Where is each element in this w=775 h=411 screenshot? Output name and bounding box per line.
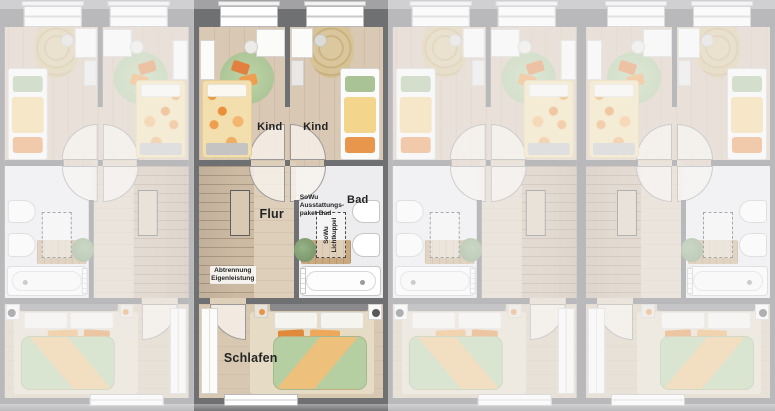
wall-bottom-exterior xyxy=(388,398,582,404)
wall-bottom-exterior xyxy=(581,398,775,404)
shelf-kid-right xyxy=(678,60,691,86)
exterior-ground-top xyxy=(581,0,775,9)
rug-jute xyxy=(695,18,741,78)
nightstand-left xyxy=(641,304,655,318)
wall-bedroom-north-right xyxy=(392,298,529,304)
towel-radiator xyxy=(687,268,693,294)
window-bedroom xyxy=(90,394,164,406)
annotation-abtrennung-line2: Eigenleistung xyxy=(210,275,256,283)
pillow-kid-left xyxy=(528,84,568,97)
blanket-yellow xyxy=(731,97,763,133)
bed-kid-right xyxy=(395,68,435,160)
wardrobe-bedroom xyxy=(170,308,187,394)
rug-green xyxy=(607,52,661,104)
chair-kid-left xyxy=(130,40,144,54)
desk-kid-left xyxy=(490,29,519,57)
rug-green xyxy=(114,52,168,104)
bathtub-faucet xyxy=(747,280,752,285)
floor-plan-canvas: Kind Kind Flur Bad SoWu Ausstattungs- pa… xyxy=(0,0,775,411)
bed-kid-left xyxy=(523,80,573,158)
window-kid-left xyxy=(607,6,665,27)
bed-headboard xyxy=(20,302,118,311)
nightstand-right xyxy=(6,304,20,320)
wall-hall-bath xyxy=(476,200,481,298)
bed-pillow-right xyxy=(411,312,455,329)
wall-left-party xyxy=(189,9,194,404)
bathtub-faucet xyxy=(410,280,415,285)
door-swing-hall xyxy=(490,166,526,202)
bedroom-rug xyxy=(637,312,761,394)
pillow-kid-left xyxy=(594,84,634,97)
wall-right-party xyxy=(388,9,393,404)
decor-orange xyxy=(646,309,652,315)
toilet xyxy=(739,233,767,257)
cushion-orange-2 xyxy=(130,73,149,88)
room-label-flur: Flur xyxy=(242,207,302,221)
wall-top-exterior xyxy=(388,9,582,27)
pillow-green xyxy=(13,76,43,92)
bathtub-basin xyxy=(693,271,763,291)
towel-radiator xyxy=(469,268,475,294)
bed-cushion-orange-2 xyxy=(435,329,465,339)
wall-right-party xyxy=(0,9,5,404)
desk-kid-left xyxy=(103,29,132,57)
annotation-abtrennung-line1: Abtrennung xyxy=(210,267,256,275)
toilet xyxy=(8,233,36,257)
wall-kids-divider xyxy=(98,27,103,107)
bathroom-floor xyxy=(683,166,770,298)
bathtub-basin xyxy=(12,271,82,291)
wardrobe-kid-left xyxy=(560,40,575,80)
bed-pillow-right xyxy=(707,312,751,329)
bathtub-basin xyxy=(399,271,469,291)
exterior-ground-top xyxy=(0,0,194,9)
desk-kid-right xyxy=(462,28,484,58)
door-swing-bedroom xyxy=(597,304,633,340)
chair-kid-left xyxy=(631,40,645,54)
door-swing-kid-right xyxy=(677,124,713,160)
bed-kid-right xyxy=(727,68,767,160)
window-kid-left xyxy=(110,6,168,27)
wall-left-party xyxy=(581,9,586,404)
door-swing-bath xyxy=(62,166,98,202)
staircase xyxy=(521,166,576,298)
wall-kids-south-left xyxy=(137,160,189,166)
chair-kid-right xyxy=(701,34,714,47)
bed-pillow-left xyxy=(661,312,705,329)
door-swing-bedroom xyxy=(529,304,565,340)
bath-mat-wood xyxy=(37,240,87,264)
nightstand-left xyxy=(507,304,521,318)
window-kid-right xyxy=(693,6,751,27)
exterior-ground-bottom xyxy=(0,404,194,411)
wall-kids-south-stub xyxy=(98,160,103,166)
unit-1: Kind Kind Flur Bad SoWu Ausstattungs- pa… xyxy=(0,0,194,411)
bathroom-floor xyxy=(392,166,479,298)
bed-bench-kid-left xyxy=(140,143,182,155)
door-swing-kid-left xyxy=(636,124,672,160)
room-label-bad: Bad xyxy=(341,194,375,206)
unit-floorplan: Kind Kind Flur Bad SoWu Ausstattungs- pa… xyxy=(194,0,388,411)
wall-kids-divider xyxy=(672,27,677,107)
bath-mat-wood xyxy=(688,240,738,264)
wall-kids-south-right xyxy=(392,160,451,166)
wall-bottom-exterior xyxy=(0,398,194,404)
room-labels: Kind Kind Flur Bad SoWu Ausstattungs- pa… xyxy=(194,0,388,411)
staircase-void xyxy=(617,190,637,236)
bed-cushion-orange-2 xyxy=(697,329,727,339)
bed-bench-kid-left xyxy=(527,143,569,155)
window-bedroom xyxy=(611,394,685,406)
plant xyxy=(72,238,94,262)
bed-pillow-right xyxy=(24,312,68,329)
door-swing-kid-right xyxy=(62,124,98,160)
bathtub xyxy=(688,266,768,296)
wall-kids-south-right xyxy=(5,160,64,166)
wall-kids-south-stub xyxy=(672,160,677,166)
bed-kid-right xyxy=(8,68,48,160)
room-label-kind-right: Kind xyxy=(286,121,346,133)
bidet xyxy=(8,200,36,223)
door-swing-kid-right xyxy=(449,124,485,160)
pillow-green xyxy=(400,76,430,92)
door-swing-kid-left xyxy=(103,124,139,160)
window-sill-right xyxy=(22,1,84,6)
bedroom-floor xyxy=(392,304,576,398)
blanket-yellow xyxy=(12,97,44,133)
window-kid-right xyxy=(24,6,82,27)
wall-hall-bath xyxy=(681,200,686,298)
chair-kid-right xyxy=(448,34,461,47)
staircase xyxy=(586,166,641,298)
bed-pillow-left xyxy=(70,312,114,329)
bed-kid-left xyxy=(589,80,639,158)
nightstand-left xyxy=(120,304,134,318)
bed-cushion-orange-1 xyxy=(665,329,691,339)
bathroom-floor xyxy=(5,166,92,298)
bed-cushion-orange-1 xyxy=(471,329,497,339)
hall-floor xyxy=(586,160,683,304)
unit-floorplan: Kind Kind Flur Bad SoWu Ausstattungs- pa… xyxy=(581,0,775,411)
bed-duvet xyxy=(21,336,115,390)
door-swing-hall xyxy=(636,166,672,202)
bathtub xyxy=(394,266,474,296)
cushion-orange-2 xyxy=(517,73,536,88)
wardrobe-kid-left xyxy=(587,40,602,80)
door-swing-hall xyxy=(103,166,139,202)
pillow-green xyxy=(732,76,762,92)
annotation-lichtkuppel-line1: SoWu xyxy=(323,207,331,263)
kids-rooms-floor xyxy=(5,27,189,166)
wall-right-party xyxy=(770,9,775,404)
unit-2: Kind Kind Flur Bad SoWu Ausstattungs- pa… xyxy=(194,0,388,411)
cushion-orange-3 xyxy=(400,137,430,153)
blanket-yellow xyxy=(399,97,431,133)
desk-kid-left xyxy=(643,29,672,57)
bedroom-floor xyxy=(586,304,770,398)
hall-floor xyxy=(479,160,576,304)
kids-rooms-floor xyxy=(586,27,770,166)
bed-kid-left xyxy=(136,80,186,158)
rug-green xyxy=(501,52,555,104)
wall-bedroom-north-right xyxy=(633,298,770,304)
staircase-void xyxy=(138,190,158,236)
window-sill-left xyxy=(605,1,667,6)
exterior-ground-bottom xyxy=(581,404,775,411)
skylight-outline xyxy=(42,212,72,258)
chair-kid-left xyxy=(517,40,531,54)
chair-kid-right xyxy=(61,34,74,47)
exterior-ground-top xyxy=(388,0,582,9)
bedroom-rug xyxy=(14,312,138,394)
bath-mat-wood xyxy=(424,240,474,264)
bed-duvet xyxy=(660,336,754,390)
unit-3: Kind Kind Flur Bad SoWu Ausstattungs- pa… xyxy=(388,0,582,411)
annotation-abtrennung: Abtrennung Eigenleistung xyxy=(210,266,256,284)
plant xyxy=(681,238,703,262)
bed-headboard xyxy=(407,302,505,311)
toilet xyxy=(395,233,423,257)
speaker xyxy=(8,309,16,317)
bedroom-rug xyxy=(401,312,525,394)
skylight-outline xyxy=(429,212,459,258)
window-kid-right xyxy=(411,6,469,27)
bidet xyxy=(395,200,423,223)
annotation-lichtkuppel: SoWu Lichtkuppel xyxy=(323,207,339,263)
wall-kids-south-left xyxy=(586,160,638,166)
cushion-orange-3 xyxy=(732,137,762,153)
nightstand-right xyxy=(393,304,407,320)
unit-floorplan: Kind Kind Flur Bad SoWu Ausstattungs- pa… xyxy=(0,0,194,411)
cushion-orange-1 xyxy=(618,60,638,76)
staircase xyxy=(134,166,189,298)
wardrobe-kid-left xyxy=(173,40,188,80)
bathtub-faucet xyxy=(23,280,28,285)
bidet xyxy=(739,200,767,223)
plant xyxy=(459,238,481,262)
window-sill-right xyxy=(691,1,753,6)
rug-jute xyxy=(421,18,467,78)
bed-duvet xyxy=(408,336,502,390)
skylight-outline xyxy=(703,212,733,258)
window-sill-left xyxy=(108,1,170,6)
wall-kids-south-left xyxy=(524,160,576,166)
wardrobe-bedroom xyxy=(557,308,574,394)
wall-top-exterior xyxy=(0,9,194,27)
window-sill-left xyxy=(495,1,557,6)
bathtub xyxy=(7,266,87,296)
wall-bedroom-north-left xyxy=(586,298,597,304)
decor-orange xyxy=(510,309,516,315)
shelf-kid-right xyxy=(471,60,484,86)
desk-kid-right xyxy=(678,28,700,58)
window-bedroom xyxy=(477,394,551,406)
wall-bedroom-north-left xyxy=(178,298,189,304)
towel-radiator xyxy=(82,268,88,294)
door-swing-kid-left xyxy=(490,124,526,160)
kids-rooms-floor xyxy=(392,27,576,166)
wall-kids-south-right xyxy=(711,160,770,166)
door-swing-bath xyxy=(677,166,713,202)
exterior-ground-bottom xyxy=(388,404,582,411)
bed-cushion-orange-2 xyxy=(48,329,78,339)
annotation-sowu-line1: SoWu xyxy=(300,194,342,202)
speaker xyxy=(759,309,767,317)
wall-kids-divider xyxy=(485,27,490,107)
wall-bedroom-north-left xyxy=(565,298,576,304)
cushion-orange-1 xyxy=(137,60,157,76)
window-kid-left xyxy=(497,6,555,27)
wall-kids-south-stub xyxy=(485,160,490,166)
speaker xyxy=(395,309,403,317)
shelf-kid-right xyxy=(84,60,97,86)
bed-pillow-left xyxy=(457,312,501,329)
desk-kid-right xyxy=(75,28,97,58)
door-swing-bedroom xyxy=(142,304,178,340)
nightstand-right xyxy=(755,304,769,320)
bed-cushion-orange-1 xyxy=(84,329,110,339)
room-label-schlafen: Schlafen xyxy=(220,351,282,365)
hall-floor xyxy=(92,160,189,304)
cushion-orange-2 xyxy=(626,73,645,88)
wardrobe-bedroom xyxy=(588,308,605,394)
decor-orange xyxy=(123,309,129,315)
wall-hall-bath xyxy=(89,200,94,298)
rug-jute xyxy=(34,18,80,78)
bed-bench-kid-left xyxy=(593,143,635,155)
window-sill-right xyxy=(409,1,471,6)
door-swing-bath xyxy=(449,166,485,202)
cushion-orange-1 xyxy=(525,60,545,76)
pillow-kid-left xyxy=(141,84,181,97)
unit-4: Kind Kind Flur Bad SoWu Ausstattungs- pa… xyxy=(581,0,775,411)
cushion-orange-3 xyxy=(13,137,43,153)
unit-floorplan: Kind Kind Flur Bad SoWu Ausstattungs- pa… xyxy=(388,0,582,411)
annotation-lichtkuppel-line2: Lichtkuppel xyxy=(331,207,339,263)
bed-headboard xyxy=(657,302,755,311)
wall-top-exterior xyxy=(581,9,775,27)
bedroom-floor xyxy=(5,304,189,398)
wall-bedroom-north-right xyxy=(5,298,142,304)
staircase-void xyxy=(525,190,545,236)
